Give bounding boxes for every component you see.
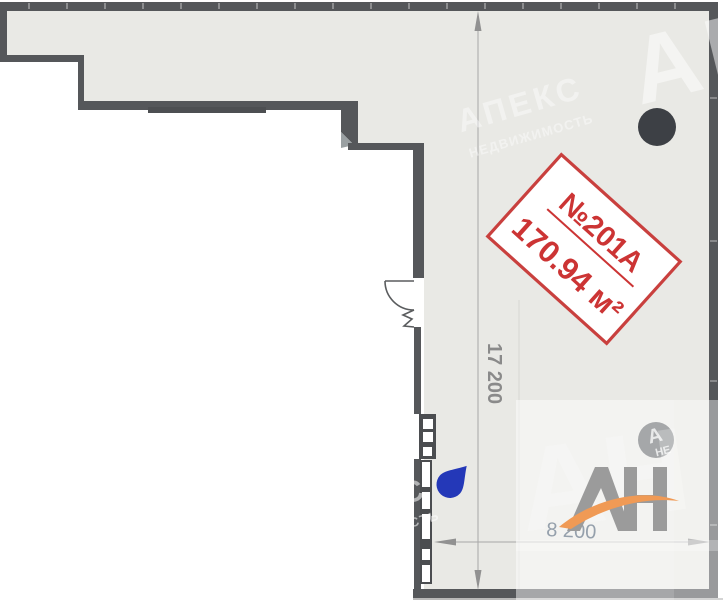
svg-text:17 200: 17 200 (483, 343, 505, 404)
